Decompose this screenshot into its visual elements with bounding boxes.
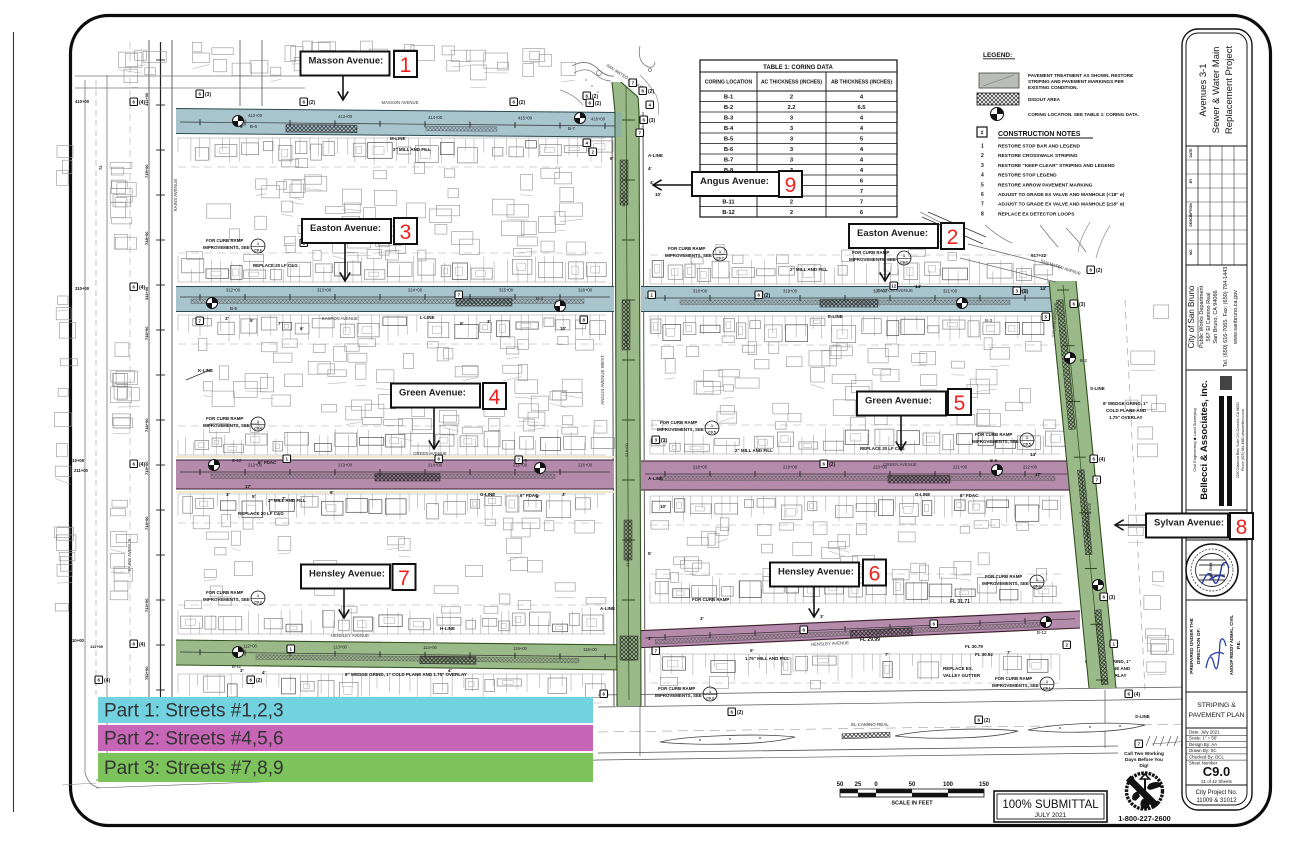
svg-text:B-10: B-10 bbox=[232, 458, 242, 463]
svg-text:Date: July 2021: Date: July 2021 bbox=[1189, 730, 1220, 735]
svg-text:(2): (2) bbox=[829, 462, 835, 468]
svg-text:319+00: 319+00 bbox=[783, 289, 798, 294]
svg-text:Phone (925) 681-4880 www.bel: Phone (925) 681-4880 www.bellecci.com bbox=[1241, 409, 1245, 471]
svg-text:(4): (4) bbox=[139, 642, 145, 648]
svg-text:6.5: 6.5 bbox=[857, 105, 866, 111]
svg-text:718+00: 718+00 bbox=[144, 231, 149, 245]
svg-text:4': 4' bbox=[648, 166, 652, 171]
svg-text:San Bruno, CA 94066: San Bruno, CA 94066 bbox=[1213, 290, 1219, 343]
svg-text:213+00: 213+00 bbox=[338, 463, 353, 468]
svg-text:REPLACE 20 LF C&G: REPLACE 20 LF C&G bbox=[253, 263, 298, 268]
svg-text:4': 4' bbox=[262, 670, 266, 675]
svg-text:6: 6 bbox=[981, 192, 984, 198]
svg-text:3': 3' bbox=[820, 614, 824, 619]
svg-text:216+00: 216+00 bbox=[578, 463, 593, 468]
svg-text:MASSON AVENUE: MASSON AVENUE bbox=[382, 100, 419, 105]
svg-text:100% SUBMITTAL: 100% SUBMITTAL bbox=[1002, 799, 1099, 811]
svg-text:2: 2 bbox=[790, 200, 793, 206]
svg-text:7': 7' bbox=[885, 652, 889, 657]
svg-text:1: 1 bbox=[257, 242, 259, 246]
svg-text:B-7: B-7 bbox=[568, 126, 576, 131]
svg-text:(4): (4) bbox=[1134, 692, 1140, 698]
svg-text:1: 1 bbox=[257, 420, 259, 424]
svg-text:FOR CURB RAMP: FOR CURB RAMP bbox=[975, 432, 1012, 437]
svg-text:5': 5' bbox=[648, 551, 652, 556]
svg-text:B-1: B-1 bbox=[724, 95, 734, 101]
svg-text:PAVEMENT PLAN: PAVEMENT PLAN bbox=[1189, 712, 1245, 719]
svg-text:CONSTRUCTION NOTES: CONSTRUCTION NOTES bbox=[998, 131, 1081, 138]
svg-text:116+00: 116+00 bbox=[583, 647, 597, 652]
svg-text:(2): (2) bbox=[256, 678, 262, 684]
svg-text:6': 6' bbox=[610, 156, 614, 161]
svg-text:314+00: 314+00 bbox=[408, 288, 423, 293]
svg-text:FOR CURB RAMP: FOR CURB RAMP bbox=[206, 590, 243, 595]
svg-text:6': 6' bbox=[330, 490, 334, 495]
svg-text:PREPARED UNDER THE: PREPARED UNDER THE bbox=[1189, 617, 1195, 673]
svg-text:14': 14' bbox=[1030, 452, 1036, 457]
svg-text:4': 4' bbox=[448, 668, 452, 673]
svg-text:Bellecci & Associates, inc.: Bellecci & Associates, inc. bbox=[1199, 380, 1210, 500]
svg-text:14': 14' bbox=[915, 284, 921, 289]
svg-text:3': 3' bbox=[700, 616, 704, 621]
svg-text:C9.7: C9.7 bbox=[900, 260, 908, 264]
svg-text:City of San Bruno: City of San Bruno bbox=[1187, 285, 1196, 348]
svg-text:10': 10' bbox=[560, 326, 566, 331]
svg-text:413+00: 413+00 bbox=[338, 114, 353, 119]
svg-text:FL 30.79: FL 30.79 bbox=[965, 644, 983, 649]
svg-text:Replacement Project: Replacement Project bbox=[1224, 46, 1235, 135]
svg-text:1: 1 bbox=[1036, 578, 1038, 582]
svg-text:C9.5: C9.5 bbox=[708, 430, 716, 434]
svg-text:1: 1 bbox=[400, 54, 412, 77]
svg-text:(2): (2) bbox=[764, 293, 770, 299]
svg-text:50: 50 bbox=[837, 782, 844, 788]
svg-text:Checked By: DCL: Checked By: DCL bbox=[1189, 754, 1224, 759]
svg-text:PAVEMENT TREATMENT AS SHOWN. R: PAVEMENT TREATMENT AS SHOWN. RESTORE bbox=[1028, 73, 1133, 78]
svg-text:C9.2: C9.2 bbox=[1033, 584, 1041, 588]
svg-text:2" MILL AND FILL: 2" MILL AND FILL bbox=[790, 267, 828, 272]
svg-text:Easton Avenue:: Easton Avenue: bbox=[310, 223, 381, 234]
svg-text:SCALE IN FEET: SCALE IN FEET bbox=[891, 801, 933, 807]
svg-text:FOR CURB RAMP: FOR CURB RAMP bbox=[852, 250, 889, 255]
svg-text:C9.7: C9.7 bbox=[716, 256, 724, 260]
svg-text:72: 72 bbox=[98, 165, 103, 170]
svg-text:Hensley Avenue:: Hensley Avenue: bbox=[778, 567, 854, 578]
svg-text:S-LINE: S-LINE bbox=[1090, 386, 1105, 391]
svg-text:221+00: 221+00 bbox=[953, 465, 968, 470]
svg-text:7': 7' bbox=[282, 496, 286, 501]
svg-text:C9.5: C9.5 bbox=[1023, 442, 1031, 446]
svg-text:1.75" MILL AND FILL: 1.75" MILL AND FILL bbox=[745, 656, 789, 661]
svg-text:IMPROVEMENTS, SEE: IMPROVEMENTS, SEE bbox=[203, 597, 250, 602]
svg-text:STRIPING AND PAVEMENT MARKINGS: STRIPING AND PAVEMENT MARKINGS PER bbox=[1028, 79, 1125, 84]
svg-text:RESTORE ARROW PAVEMENT MARKING: RESTORE ARROW PAVEMENT MARKING bbox=[998, 182, 1093, 188]
svg-text:C9.4: C9.4 bbox=[254, 426, 262, 430]
svg-text:IMPROVEMENTS, SEE: IMPROVEMENTS, SEE bbox=[972, 439, 1019, 444]
svg-text:Part 2: Streets #4,5,6: Part 2: Streets #4,5,6 bbox=[104, 729, 284, 750]
svg-text:1: 1 bbox=[1026, 436, 1028, 440]
svg-text:(2): (2) bbox=[1096, 268, 1102, 274]
svg-text:2: 2 bbox=[947, 226, 959, 249]
svg-text:1: 1 bbox=[709, 690, 711, 694]
svg-text:City Project No.: City Project No. bbox=[1196, 790, 1238, 796]
svg-text:DESCRIPTION: DESCRIPTION bbox=[1189, 203, 1193, 227]
svg-text:Green Avenue:: Green Avenue: bbox=[865, 396, 932, 407]
svg-text:VALLEY GUTTER: VALLEY GUTTER bbox=[943, 673, 981, 678]
svg-text:6" FDAC: 6" FDAC bbox=[960, 493, 979, 498]
svg-text:1: 1 bbox=[1046, 680, 1048, 684]
svg-text:(1): (1) bbox=[661, 438, 667, 444]
svg-text:3': 3' bbox=[225, 316, 229, 321]
svg-text:B-5: B-5 bbox=[724, 137, 734, 143]
svg-text:222+00: 222+00 bbox=[1023, 465, 1038, 470]
svg-text:716+00: 716+00 bbox=[144, 326, 149, 340]
svg-text:17': 17' bbox=[1035, 472, 1041, 477]
svg-text:(4): (4) bbox=[139, 100, 145, 106]
svg-text:315+00: 315+00 bbox=[499, 288, 514, 293]
svg-text:EL CAMINO REAL: EL CAMINO REAL bbox=[851, 722, 889, 727]
svg-text:REPLACE EX DETECTOR LOOPS: REPLACE EX DETECTOR LOOPS bbox=[998, 211, 1075, 217]
svg-text:7: 7 bbox=[860, 200, 863, 206]
svg-text:2" MILL AND FILL: 2" MILL AND FILL bbox=[268, 498, 306, 503]
svg-text:719+00: 719+00 bbox=[144, 164, 149, 178]
svg-text:2: 2 bbox=[981, 153, 984, 159]
svg-text:716+00: 716+00 bbox=[144, 418, 149, 432]
svg-text:2290 Diamond Blvd, Suite 100: 2290 Diamond Blvd, Suite 100 Concord, CA… bbox=[1236, 402, 1240, 478]
svg-text:B-4: B-4 bbox=[724, 126, 734, 132]
svg-text:IMPROVEMENTS, SEE: IMPROVEMENTS, SEE bbox=[203, 245, 250, 250]
svg-text:FOR CURB RAMP: FOR CURB RAMP bbox=[658, 686, 695, 691]
svg-text:219+00: 219+00 bbox=[783, 465, 798, 470]
svg-text:6': 6' bbox=[300, 326, 304, 331]
svg-text:H-LINE: H-LINE bbox=[440, 626, 455, 631]
svg-text:416+00: 416+00 bbox=[591, 116, 606, 121]
svg-text:FOR CURB RAMP: FOR CURB RAMP bbox=[660, 420, 697, 425]
svg-text:Public Works Department: Public Works Department bbox=[1199, 285, 1205, 348]
svg-text:(2): (2) bbox=[309, 100, 315, 106]
svg-text:M-LINE: M-LINE bbox=[390, 136, 406, 141]
svg-text:113+00: 113+00 bbox=[333, 644, 347, 649]
svg-text:JULY 2021: JULY 2021 bbox=[1035, 812, 1067, 819]
svg-text:IMPROVEMENTS, SEE: IMPROVEMENTS, SEE bbox=[982, 581, 1029, 586]
svg-text:L-LINE: L-LINE bbox=[420, 315, 435, 320]
svg-text:REPLACE EX.: REPLACE EX. bbox=[943, 666, 973, 671]
svg-text:(3): (3) bbox=[205, 92, 211, 98]
svg-text:Dig!: Dig! bbox=[1139, 763, 1149, 769]
svg-text:412+00: 412+00 bbox=[248, 113, 263, 118]
svg-text:Easton Avenue:: Easton Avenue: bbox=[857, 228, 928, 239]
svg-text:IMPROVEMENTS, SEE: IMPROVEMENTS, SEE bbox=[849, 257, 896, 262]
svg-text:FOR CURB RAMP: FOR CURB RAMP bbox=[668, 246, 705, 251]
svg-text:IMPROVEMENTS, SEE: IMPROVEMENTS, SEE bbox=[665, 253, 712, 258]
svg-text:6: 6 bbox=[869, 563, 881, 586]
svg-text:B-3: B-3 bbox=[724, 116, 734, 122]
svg-text:Part 3: Streets #7,8,9: Part 3: Streets #7,8,9 bbox=[104, 758, 284, 779]
svg-text:EXISTING CONDITION.: EXISTING CONDITION. bbox=[1028, 85, 1078, 90]
svg-text:1: 1 bbox=[903, 254, 905, 258]
svg-text:516+00: 516+00 bbox=[624, 443, 629, 457]
svg-text:RESTORE STOP LEGEND: RESTORE STOP LEGEND bbox=[998, 173, 1057, 179]
svg-text:312+00: 312+00 bbox=[226, 288, 241, 293]
svg-text:3: 3 bbox=[400, 221, 412, 244]
svg-text:KAINS AVENUE: KAINS AVENUE bbox=[173, 179, 178, 212]
svg-text:(2): (2) bbox=[984, 718, 990, 724]
svg-text:5': 5' bbox=[750, 648, 754, 653]
svg-text:(3): (3) bbox=[649, 118, 655, 124]
svg-text:210+00: 210+00 bbox=[70, 458, 85, 463]
svg-text:21 of 42 Sheets: 21 of 42 Sheets bbox=[1201, 779, 1233, 784]
svg-text:8: 8 bbox=[981, 211, 984, 217]
svg-text:1: 1 bbox=[257, 594, 259, 598]
svg-text:7': 7' bbox=[1007, 650, 1011, 655]
svg-text:B-7: B-7 bbox=[724, 158, 733, 164]
svg-text:(2): (2) bbox=[737, 710, 743, 716]
svg-text:RESTORE "KEEP CLEAR" STRIPING: RESTORE "KEEP CLEAR" STRIPING AND LEGEND bbox=[998, 163, 1115, 169]
svg-text:415+00: 415+00 bbox=[518, 116, 533, 121]
svg-text:100: 100 bbox=[943, 782, 954, 788]
svg-text:C9.0: C9.0 bbox=[1203, 764, 1230, 779]
svg-text:(3): (3) bbox=[1079, 302, 1085, 308]
svg-text:10': 10' bbox=[655, 192, 661, 197]
svg-text:12: 12 bbox=[891, 284, 897, 289]
svg-text:1: 1 bbox=[981, 144, 984, 150]
svg-text:Avenues 3-1: Avenues 3-1 bbox=[1198, 63, 1209, 116]
svg-text:GREEN AVENUE: GREEN AVENUE bbox=[883, 462, 917, 467]
svg-text:Call Two Working: Call Two Working bbox=[1124, 751, 1164, 757]
svg-text:B-11: B-11 bbox=[722, 200, 735, 206]
svg-text:5': 5' bbox=[250, 318, 254, 323]
svg-text:KAINS AVENUE: KAINS AVENUE bbox=[127, 539, 132, 572]
svg-text:110+00: 110+00 bbox=[70, 638, 85, 643]
svg-text:414+00: 414+00 bbox=[428, 115, 443, 120]
svg-text:410+00: 410+00 bbox=[75, 99, 90, 104]
svg-text:C9.6: C9.6 bbox=[254, 248, 262, 252]
svg-text:Green Avenue:: Green Avenue: bbox=[399, 388, 466, 399]
svg-text:Tel. (650) 616-7065. Fax: (650: Tel. (650) 616-7065. Fax: (650) 794-1443 bbox=[1223, 267, 1229, 368]
svg-text:P.E.: P.E. bbox=[1236, 641, 1241, 649]
svg-text:8' WEDGE GRIND, 1": 8' WEDGE GRIND, 1" bbox=[1103, 401, 1148, 406]
svg-text:2: 2 bbox=[790, 210, 793, 216]
svg-text:313+00: 313+00 bbox=[317, 288, 332, 293]
svg-text:ANOOP REDDY ADMAL, CIVIL: ANOOP REDDY ADMAL, CIVIL bbox=[1229, 614, 1234, 675]
svg-text:1.75" OVERLAY: 1.75" OVERLAY bbox=[1109, 415, 1142, 420]
svg-text:Design By: AA: Design By: AA bbox=[1189, 742, 1217, 747]
svg-text:Hensley Avenue:: Hensley Avenue: bbox=[309, 569, 385, 580]
svg-text:Scale: 1" = 50': Scale: 1" = 50' bbox=[1189, 736, 1217, 741]
svg-text:B-12: B-12 bbox=[1037, 630, 1047, 635]
svg-text:3': 3' bbox=[648, 636, 652, 641]
svg-text:ANGUS AVENUE WEST: ANGUS AVENUE WEST bbox=[600, 355, 605, 405]
svg-text:B-5: B-5 bbox=[230, 306, 238, 311]
svg-text:FOR CURB RAMP: FOR CURB RAMP bbox=[985, 574, 1022, 579]
svg-text:FOR CURB RAMP: FOR CURB RAMP bbox=[995, 676, 1032, 681]
svg-text:10': 10' bbox=[660, 504, 666, 509]
svg-text:B-12: B-12 bbox=[722, 210, 735, 216]
svg-text:7': 7' bbox=[278, 321, 282, 326]
svg-text:Sewer & Water Main: Sewer & Water Main bbox=[1211, 47, 1222, 134]
svg-text:1-800-227-2600: 1-800-227-2600 bbox=[1118, 814, 1171, 823]
svg-text:AB THICKNESS (INCHES): AB THICKNESS (INCHES) bbox=[831, 80, 892, 86]
svg-text:3': 3' bbox=[562, 492, 566, 497]
svg-text:310+00: 310+00 bbox=[75, 286, 90, 291]
svg-text:(2): (2) bbox=[595, 101, 601, 107]
svg-text:B-4: B-4 bbox=[536, 296, 544, 301]
svg-text:ADJUST TO GRADE EX VALVE AND M: ADJUST TO GRADE EX VALVE AND MANHOLE (≥1… bbox=[998, 202, 1125, 208]
svg-text:3': 3' bbox=[487, 319, 491, 324]
svg-text:IMPROVEMENTS, SEE: IMPROVEMENTS, SEE bbox=[203, 423, 250, 428]
svg-text:B-6: B-6 bbox=[724, 147, 734, 153]
svg-text:A-LINE: A-LINE bbox=[648, 476, 663, 481]
svg-text:4: 4 bbox=[981, 173, 984, 179]
svg-text:3': 3' bbox=[240, 668, 244, 673]
svg-text:111+00: 111+00 bbox=[90, 644, 104, 649]
svg-text:112+00: 112+00 bbox=[243, 643, 257, 648]
svg-text:E-LINE: E-LINE bbox=[828, 314, 843, 319]
svg-text:(1): (1) bbox=[1022, 289, 1028, 295]
svg-text:Civil Engineering ◆ Land Surve: Civil Engineering ◆ Land Surveying bbox=[1192, 408, 1197, 471]
svg-text:25: 25 bbox=[855, 782, 862, 788]
svg-text:218+00: 218+00 bbox=[693, 465, 708, 470]
svg-text:G-LINE: G-LINE bbox=[915, 492, 930, 497]
svg-text:IMPROVEMENTS, SEE: IMPROVEMENTS, SEE bbox=[657, 427, 704, 432]
svg-text:752+00: 752+00 bbox=[144, 666, 149, 680]
svg-text:7: 7 bbox=[860, 189, 863, 195]
svg-text:14': 14' bbox=[1040, 286, 1046, 291]
svg-text:5': 5' bbox=[460, 321, 464, 326]
svg-text:AC THICKNESS (INCHES): AC THICKNESS (INCHES) bbox=[761, 80, 822, 86]
svg-text:DIRECTION OF:: DIRECTION OF: bbox=[1196, 628, 1202, 664]
svg-text:CORING LOCATION: CORING LOCATION bbox=[705, 80, 753, 86]
svg-text:RESTORE CROSSWALK STRIPING: RESTORE CROSSWALK STRIPING bbox=[998, 153, 1078, 159]
svg-text:Part 1: Streets #1,2,3: Part 1: Streets #1,2,3 bbox=[104, 701, 284, 722]
svg-text:Days Before You: Days Before You bbox=[1125, 757, 1163, 763]
svg-text:RESTORE STOP BAR AND LEGEND: RESTORE STOP BAR AND LEGEND bbox=[998, 144, 1080, 150]
svg-text:714+00: 714+00 bbox=[144, 516, 149, 530]
svg-text:B-6: B-6 bbox=[250, 124, 258, 129]
svg-text:Drawn By: SC: Drawn By: SC bbox=[1189, 748, 1217, 753]
svg-text:(2): (2) bbox=[519, 100, 525, 106]
svg-text:4: 4 bbox=[489, 386, 501, 409]
svg-text:C9.2: C9.2 bbox=[254, 600, 262, 604]
svg-text:IMPROVEMENTS, SEE: IMPROVEMENTS, SEE bbox=[992, 683, 1039, 688]
svg-text:321+00: 321+00 bbox=[943, 289, 958, 294]
svg-text:BY: BY bbox=[1189, 178, 1193, 183]
svg-text:www.sanbruno.ca.gov: www.sanbruno.ca.gov bbox=[1233, 290, 1239, 345]
svg-text:1: 1 bbox=[719, 250, 721, 254]
svg-text:6" FDAC: 6" FDAC bbox=[258, 460, 277, 465]
svg-text:FOR CURB RAMP: FOR CURB RAMP bbox=[692, 597, 729, 602]
svg-text:(4): (4) bbox=[139, 462, 145, 468]
svg-text:5': 5' bbox=[536, 494, 540, 499]
svg-text:214+00: 214+00 bbox=[428, 463, 443, 468]
svg-text:(2): (2) bbox=[648, 89, 654, 95]
svg-text:(4): (4) bbox=[104, 678, 110, 684]
svg-text:FL 29.99: FL 29.99 bbox=[860, 637, 880, 643]
svg-text:2" MILL AND FILL: 2" MILL AND FILL bbox=[735, 448, 773, 453]
svg-text:NO.: NO. bbox=[1189, 249, 1193, 255]
svg-text:150: 150 bbox=[979, 782, 990, 788]
svg-text:(4): (4) bbox=[139, 285, 145, 291]
svg-text:5': 5' bbox=[252, 494, 256, 499]
svg-text:1: 1 bbox=[711, 424, 713, 428]
svg-text:318+00: 318+00 bbox=[693, 289, 708, 294]
svg-text:50: 50 bbox=[909, 782, 916, 788]
svg-text:617+22: 617+22 bbox=[1031, 253, 1047, 258]
svg-text:DIGOUT AREA: DIGOUT AREA bbox=[1028, 97, 1061, 102]
svg-text:211+00: 211+00 bbox=[74, 468, 89, 473]
svg-text:Angus Avenue:: Angus Avenue: bbox=[700, 176, 769, 187]
svg-text:B-3: B-3 bbox=[985, 318, 993, 323]
svg-text:TABLE 1: CORING DATA: TABLE 1: CORING DATA bbox=[763, 65, 833, 71]
svg-text:#: # bbox=[981, 131, 984, 137]
svg-text:5: 5 bbox=[954, 392, 966, 415]
svg-text:5: 5 bbox=[981, 182, 984, 188]
svg-text:17': 17' bbox=[245, 484, 251, 489]
svg-text:Sylvan Avenue:: Sylvan Avenue: bbox=[1154, 518, 1224, 529]
svg-text:316+00: 316+00 bbox=[578, 288, 593, 293]
svg-text:STRIPING &: STRIPING & bbox=[1197, 702, 1236, 709]
svg-text:8: 8 bbox=[1236, 516, 1248, 539]
svg-text:713+00: 713+00 bbox=[144, 598, 149, 612]
svg-text:(3): (3) bbox=[1109, 595, 1115, 601]
svg-text:567 El Camino Real: 567 El Camino Real bbox=[1206, 293, 1212, 342]
svg-text:EASTON AVENUE: EASTON AVENUE bbox=[322, 316, 358, 321]
svg-text:114+00: 114+00 bbox=[423, 645, 437, 650]
svg-text:ADJUST TO GRADE EX VALVE AND M: ADJUST TO GRADE EX VALVE AND MANHOLE (<1… bbox=[998, 192, 1125, 198]
svg-text:LEGEND:: LEGEND: bbox=[983, 52, 1012, 59]
svg-text:2.2: 2.2 bbox=[787, 105, 795, 111]
svg-text:7: 7 bbox=[398, 567, 410, 590]
svg-text:(4): (4) bbox=[1099, 457, 1105, 463]
svg-text:FL 31.71: FL 31.71 bbox=[950, 599, 970, 605]
svg-text:FOR CURB RAMP: FOR CURB RAMP bbox=[206, 416, 243, 421]
svg-text:11009 & 31012: 11009 & 31012 bbox=[1196, 798, 1237, 804]
svg-text:A-LINE: A-LINE bbox=[600, 606, 615, 611]
svg-text:3: 3 bbox=[981, 163, 984, 169]
svg-text:3': 3' bbox=[226, 492, 230, 497]
svg-text:IMPROVEMENTS, SEE: IMPROVEMENTS, SEE bbox=[655, 693, 702, 698]
svg-text:FL 30.92: FL 30.92 bbox=[975, 652, 993, 657]
svg-text:DATE: DATE bbox=[1189, 148, 1193, 158]
svg-text:FOR CURB RAMP: FOR CURB RAMP bbox=[206, 238, 243, 243]
svg-text:B-2: B-2 bbox=[724, 105, 733, 111]
svg-text:B-8: B-8 bbox=[990, 458, 998, 463]
svg-text:115+00: 115+00 bbox=[513, 646, 527, 651]
svg-text:9: 9 bbox=[785, 174, 797, 197]
svg-text:A-LINE: A-LINE bbox=[648, 153, 663, 158]
svg-text:S-LINE: S-LINE bbox=[1135, 714, 1150, 719]
svg-text:7: 7 bbox=[981, 202, 984, 208]
svg-text:B-2: B-2 bbox=[1080, 358, 1088, 363]
svg-text:CORING LOCATION. SEE TABLE 1:: CORING LOCATION. SEE TABLE 1: CORING DAT… bbox=[1028, 112, 1139, 117]
svg-text:G-LINE: G-LINE bbox=[480, 492, 495, 497]
svg-text:C9.3: C9.3 bbox=[706, 696, 714, 700]
svg-text:9': 9' bbox=[240, 124, 244, 129]
svg-text:REPLACE 20 LF C&G: REPLACE 20 LF C&G bbox=[238, 511, 284, 516]
svg-text:2: 2 bbox=[790, 95, 793, 101]
svg-text:2" MILL AND FILL: 2" MILL AND FILL bbox=[393, 147, 431, 152]
svg-text:COLD PLANE AND: COLD PLANE AND bbox=[1106, 408, 1147, 413]
svg-text:HENSLEY AVENUE: HENSLEY AVENUE bbox=[331, 633, 369, 638]
svg-text:C9.1: C9.1 bbox=[1043, 686, 1051, 690]
svg-text:Masson Avenue:: Masson Avenue: bbox=[309, 56, 384, 67]
